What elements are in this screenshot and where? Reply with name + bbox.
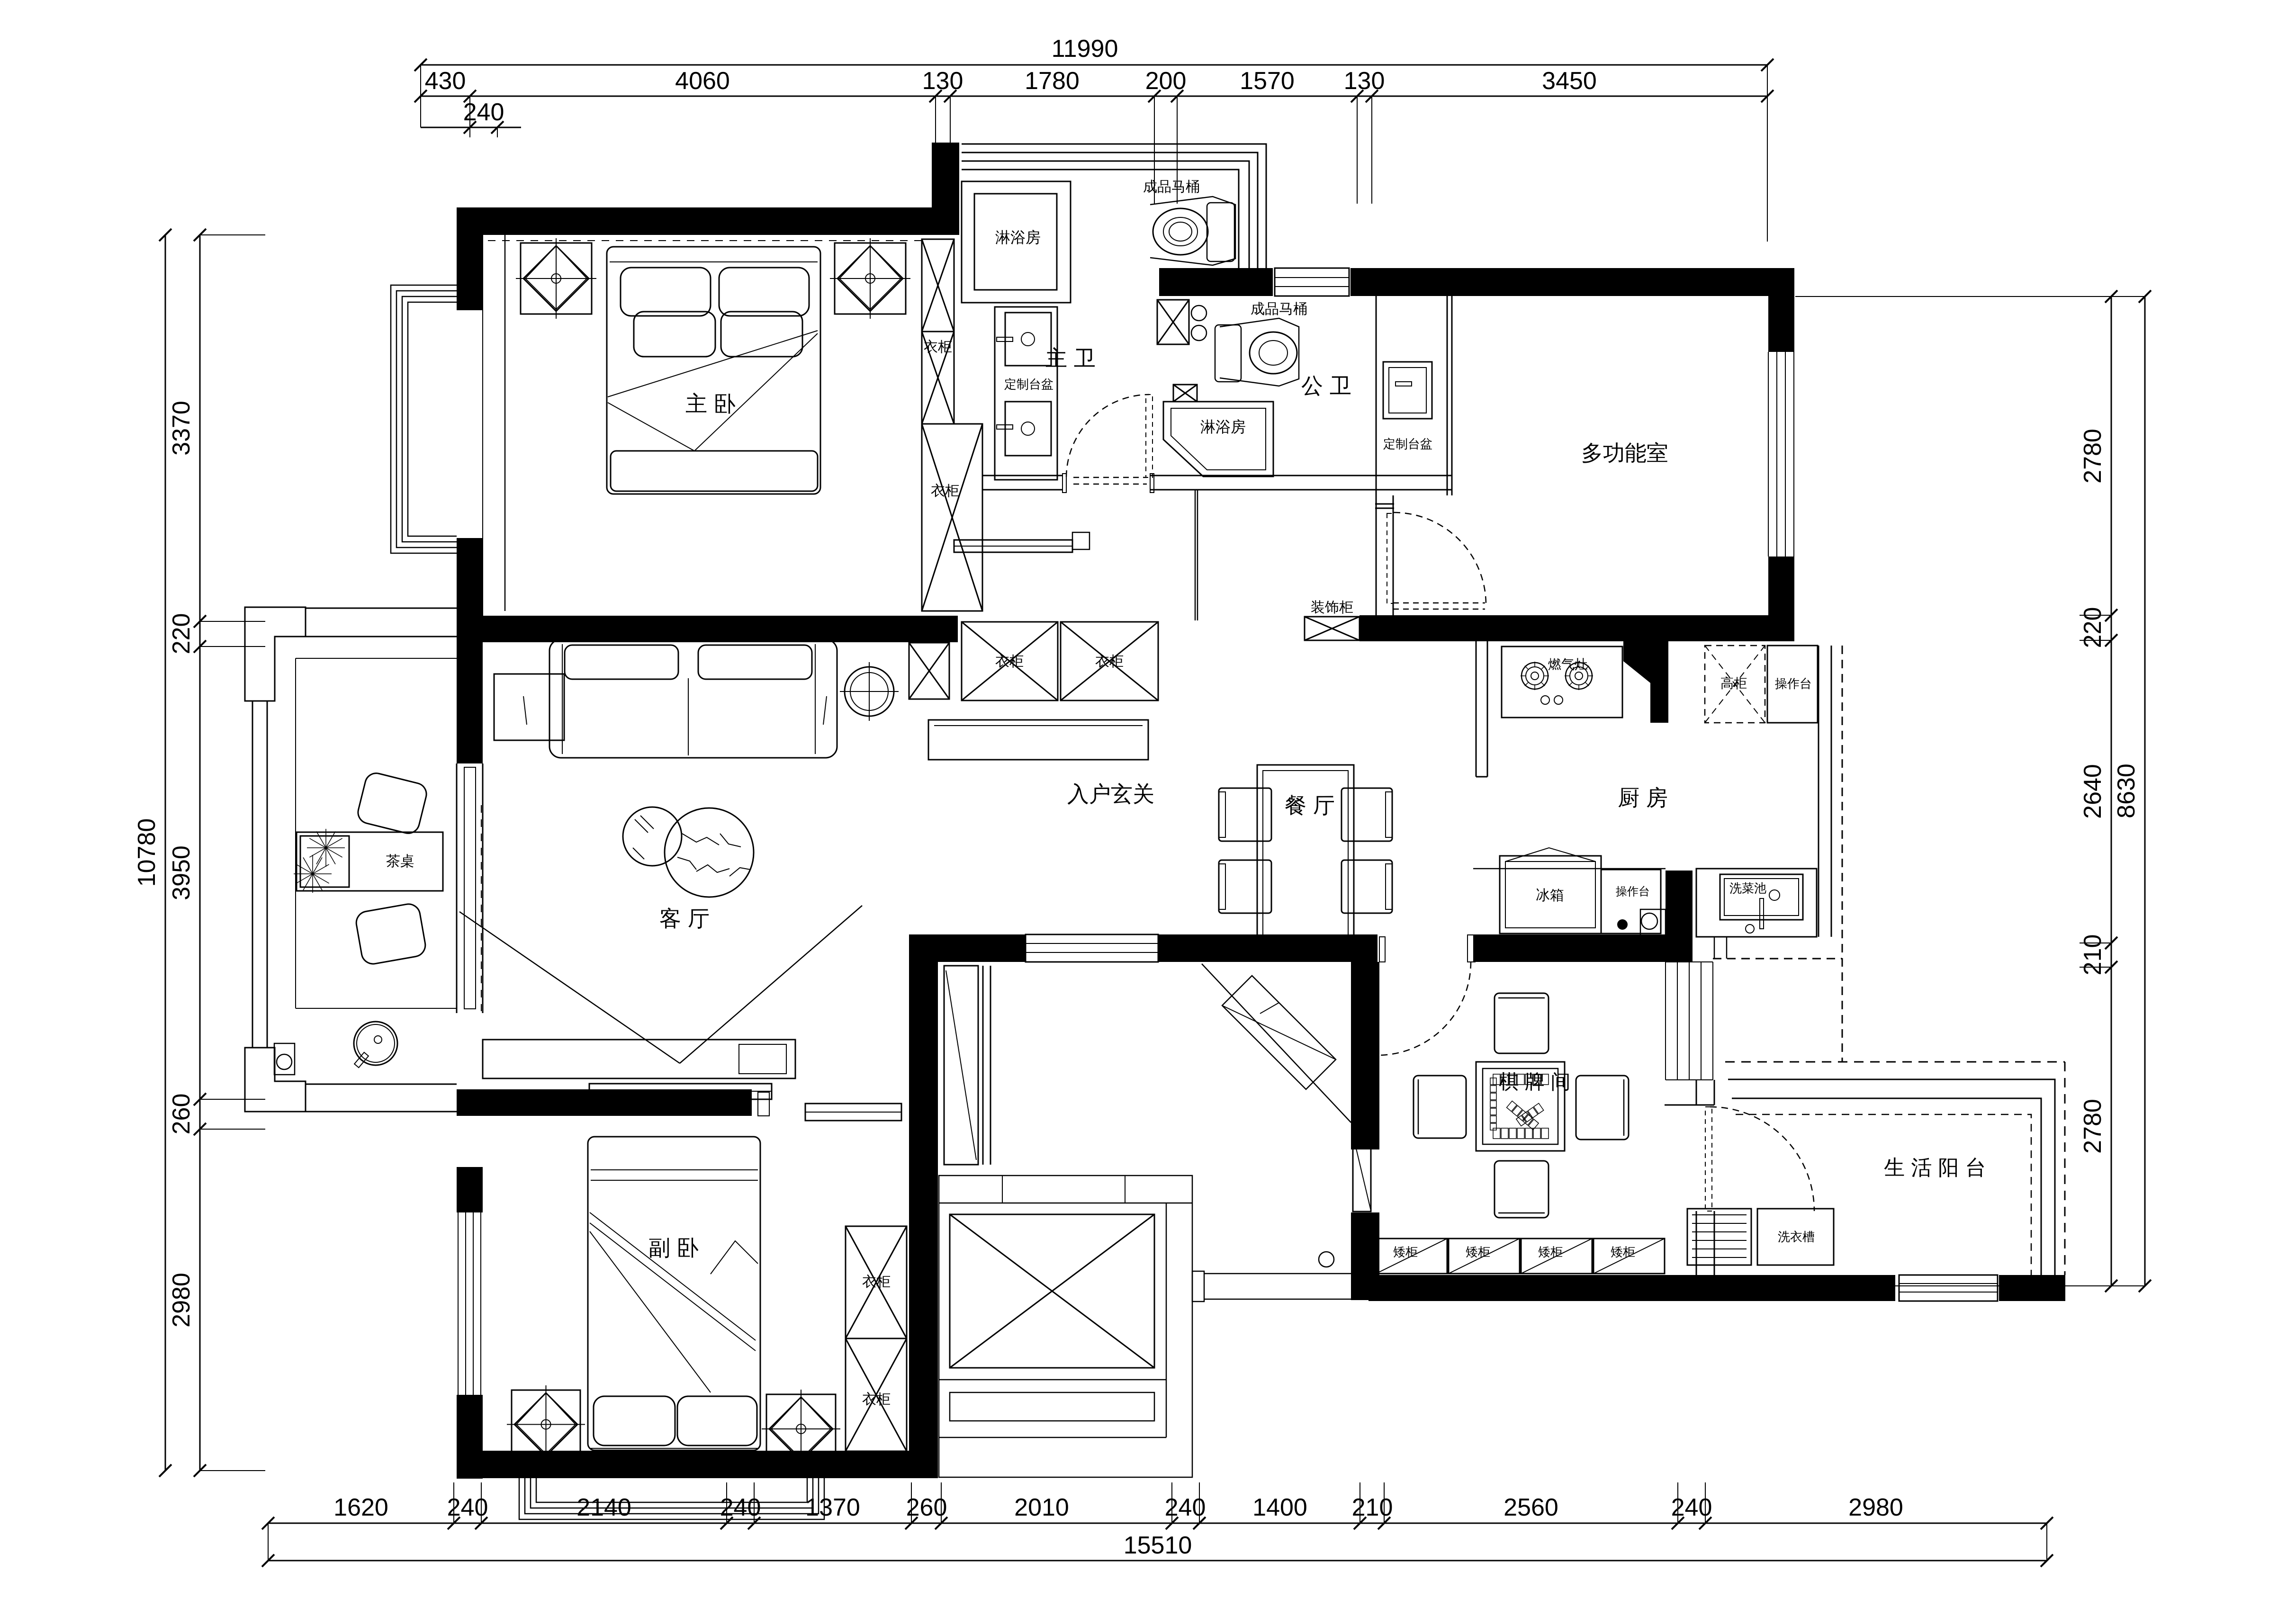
svg-text:15510: 15510 — [1124, 1532, 1192, 1559]
svg-text:260: 260 — [168, 1094, 195, 1135]
svg-text:240: 240 — [1165, 1494, 1206, 1521]
svg-text:210: 210 — [1352, 1494, 1393, 1521]
svg-text:2780: 2780 — [2079, 1099, 2107, 1154]
svg-text:1400: 1400 — [1252, 1494, 1307, 1521]
svg-text:10780: 10780 — [133, 818, 161, 887]
svg-text:2560: 2560 — [1504, 1494, 1558, 1521]
svg-text:240: 240 — [463, 99, 504, 126]
svg-text:200: 200 — [1145, 67, 1187, 95]
svg-text:430: 430 — [425, 67, 466, 95]
svg-text:130: 130 — [1344, 67, 1385, 95]
svg-text:11990: 11990 — [1052, 35, 1118, 63]
svg-text:1370: 1370 — [805, 1494, 860, 1521]
svg-text:260: 260 — [906, 1494, 947, 1521]
svg-text:2010: 2010 — [1014, 1494, 1069, 1521]
svg-text:4060: 4060 — [675, 67, 730, 95]
svg-text:2780: 2780 — [2079, 429, 2107, 484]
svg-text:210: 210 — [2079, 934, 2107, 976]
svg-text:220: 220 — [168, 613, 195, 655]
svg-text:240: 240 — [447, 1494, 488, 1521]
svg-text:1780: 1780 — [1025, 67, 1080, 95]
svg-text:3450: 3450 — [1542, 67, 1597, 95]
svg-text:3950: 3950 — [168, 845, 195, 900]
svg-text:1620: 1620 — [333, 1494, 388, 1521]
svg-text:3370: 3370 — [168, 401, 195, 456]
svg-text:2980: 2980 — [168, 1273, 195, 1328]
svg-text:220: 220 — [2079, 607, 2107, 648]
svg-text:8630: 8630 — [2113, 763, 2140, 818]
svg-text:1570: 1570 — [1240, 67, 1295, 95]
svg-text:130: 130 — [922, 67, 963, 95]
svg-text:2980: 2980 — [1848, 1494, 1903, 1521]
svg-text:2640: 2640 — [2079, 764, 2107, 819]
svg-text:240: 240 — [1671, 1494, 1712, 1521]
